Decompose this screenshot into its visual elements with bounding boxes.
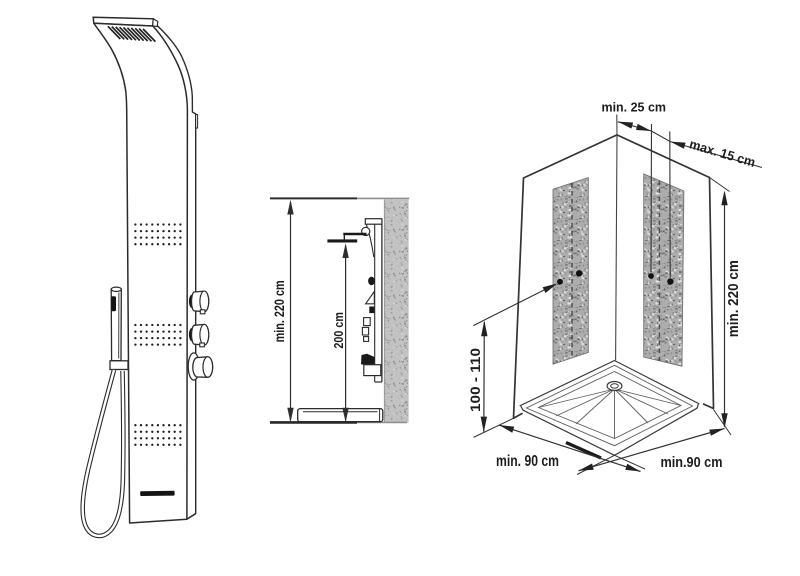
svg-text:min. 220 cm: min. 220 cm [272, 280, 287, 342]
svg-text:min.90 cm: min.90 cm [661, 455, 723, 471]
svg-text:min. 90 cm: min. 90 cm [496, 453, 559, 470]
svg-text:100 - 110: 100 - 110 [468, 348, 483, 412]
svg-text:min. 25 cm: min. 25 cm [602, 99, 667, 114]
svg-text:min. 220 cm: min. 220 cm [725, 260, 742, 337]
svg-text:200 cm: 200 cm [331, 312, 346, 349]
